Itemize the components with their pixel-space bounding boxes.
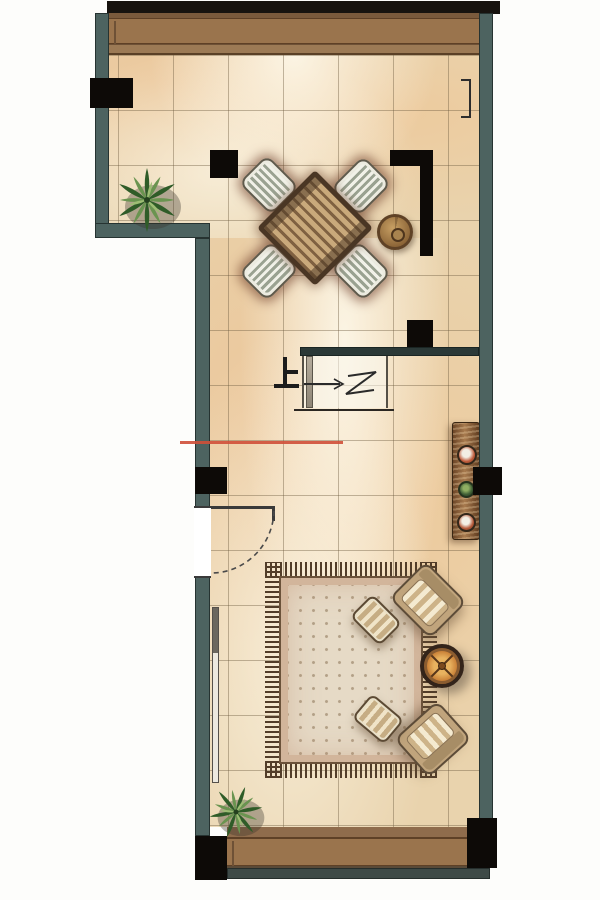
table-center-dot xyxy=(438,662,446,670)
partition-wall xyxy=(420,150,433,256)
wall-right xyxy=(479,13,493,868)
rug-fringe xyxy=(265,562,280,778)
window-sill xyxy=(109,44,479,55)
tv-panel xyxy=(212,607,219,783)
wall-column xyxy=(195,467,227,494)
wall-niche-marker xyxy=(461,116,471,118)
rattan-stool xyxy=(377,214,413,250)
plant-icon xyxy=(206,782,266,842)
exterior-wall-bottom xyxy=(227,868,490,879)
window-panes xyxy=(227,838,467,866)
window-band-top xyxy=(109,13,479,55)
label-stroke xyxy=(287,370,298,374)
column xyxy=(407,320,433,347)
wall-niche-marker xyxy=(469,79,471,118)
decor-bowl xyxy=(457,513,476,532)
column xyxy=(210,150,238,178)
decor-bowl xyxy=(457,445,477,465)
plant-icon xyxy=(111,164,183,236)
wall-left-upper xyxy=(95,13,109,238)
stairs-up-label-text: 上 xyxy=(274,357,275,358)
window-pane-icon xyxy=(232,841,234,867)
door-swing-arc xyxy=(211,509,277,577)
wall-column xyxy=(473,467,502,495)
window-panes xyxy=(109,18,479,44)
corner-column xyxy=(195,836,227,880)
stair-beam xyxy=(300,347,479,356)
wall-column xyxy=(90,78,133,108)
door-opening xyxy=(194,506,211,578)
round-side-table xyxy=(420,644,464,688)
label-stroke xyxy=(274,384,299,388)
corner-column xyxy=(467,818,497,868)
stair-direction-arrow-icon xyxy=(302,368,392,398)
reference-line xyxy=(180,441,343,444)
window-pane-icon xyxy=(114,21,116,45)
floor-plan: 上 xyxy=(0,0,600,900)
stair-stringer-line xyxy=(294,409,394,411)
stairs-up-label: 上 xyxy=(274,357,300,390)
rug-fringe xyxy=(265,763,437,778)
